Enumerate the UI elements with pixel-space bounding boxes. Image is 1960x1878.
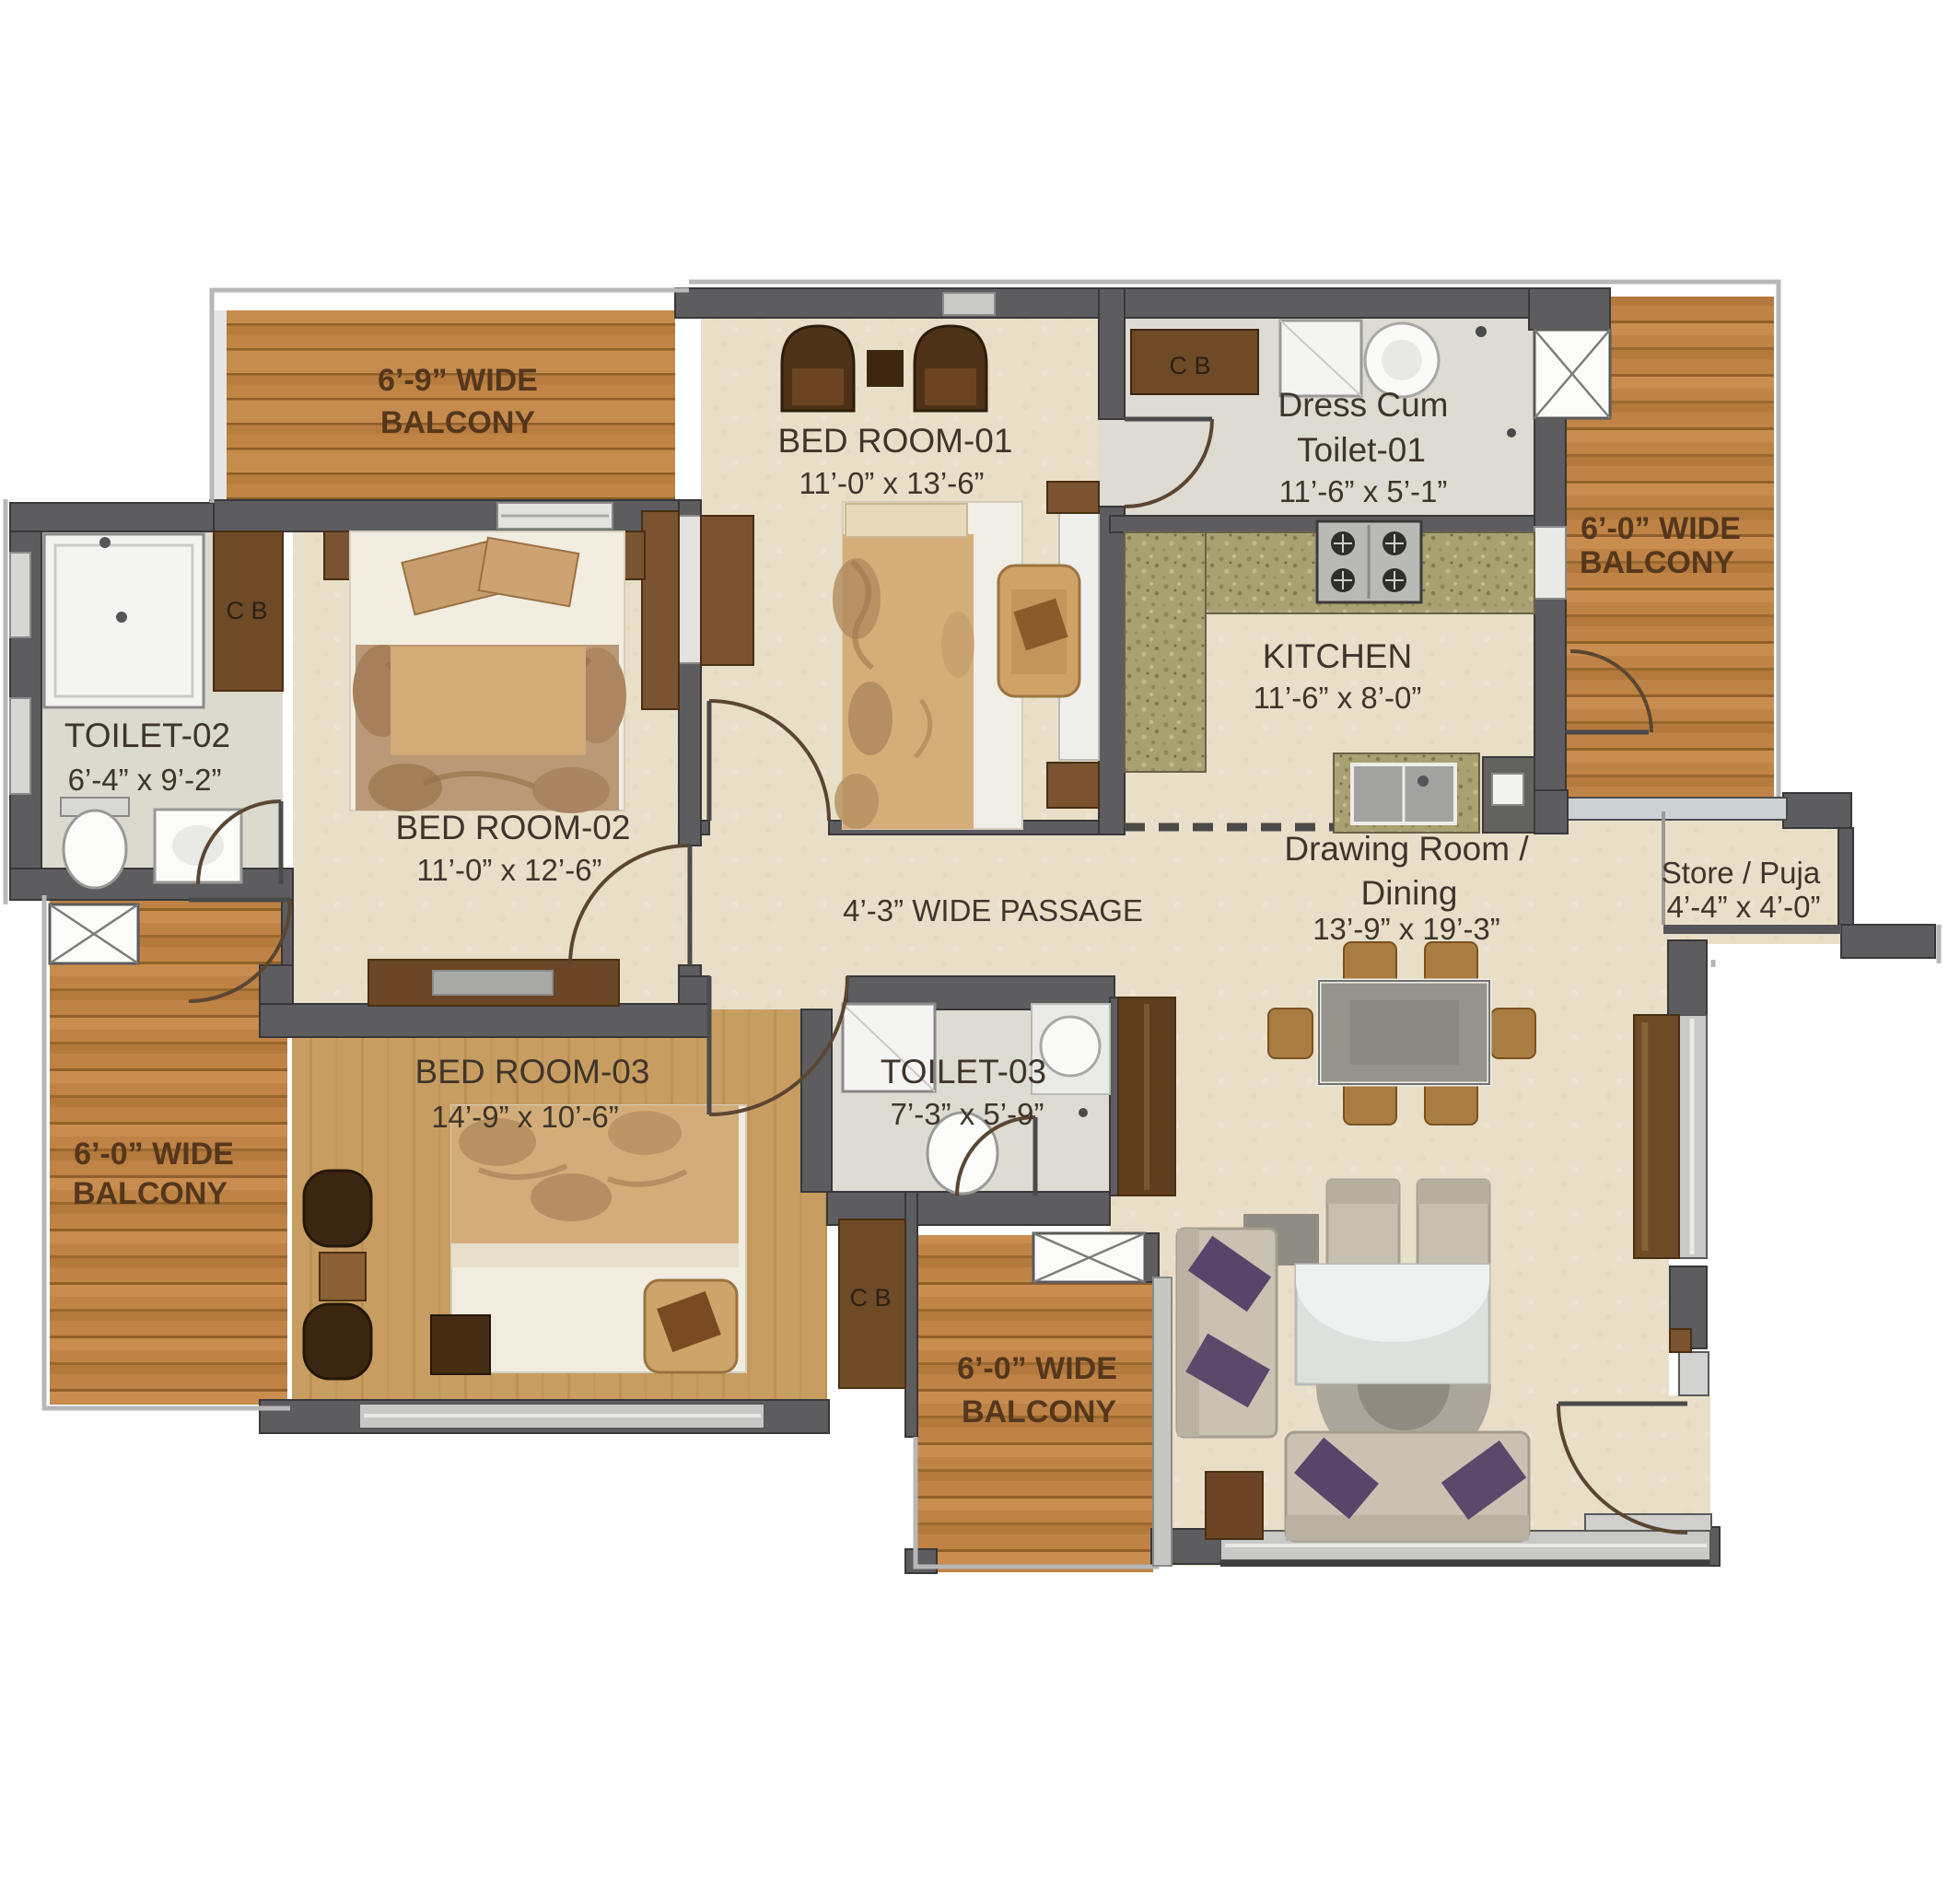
svg-text:14’-9” x 10’-6”: 14’-9” x 10’-6” — [431, 1100, 619, 1134]
svg-text:TOILET-03: TOILET-03 — [881, 1053, 1046, 1091]
svg-text:6’-0” WIDE: 6’-0” WIDE — [74, 1137, 234, 1172]
svg-text:13’-9” x 19’-3”: 13’-9” x 19’-3” — [1312, 912, 1500, 946]
svg-text:11’-0” x 13’-6”: 11’-0” x 13’-6” — [799, 466, 984, 500]
svg-text:11’-6” x 5’-1”: 11’-6” x 5’-1” — [1279, 474, 1448, 508]
svg-text:BED ROOM-01: BED ROOM-01 — [778, 422, 1013, 460]
svg-text:6’-9” WIDE: 6’-9” WIDE — [378, 363, 538, 398]
svg-text:BED ROOM-02: BED ROOM-02 — [396, 809, 631, 846]
svg-text:4’-4” x 4’-0”: 4’-4” x 4’-0” — [1667, 890, 1821, 924]
svg-text:6’-4” x 9’-2”: 6’-4” x 9’-2” — [68, 763, 222, 797]
svg-text:C B: C B — [849, 1284, 891, 1312]
svg-text:BALCONY: BALCONY — [1580, 545, 1734, 580]
svg-text:11’-6” x 8’-0”: 11’-6” x 8’-0” — [1254, 681, 1422, 715]
svg-text:7’-3” x 5’-9”: 7’-3” x 5’-9” — [891, 1097, 1044, 1131]
svg-text:C B: C B — [1169, 352, 1210, 379]
svg-text:6’-0” WIDE: 6’-0” WIDE — [1581, 511, 1741, 546]
svg-text:Dining: Dining — [1361, 874, 1458, 912]
svg-text:Toilet-01: Toilet-01 — [1297, 431, 1426, 469]
svg-text:11’-0” x 12’-6”: 11’-0” x 12’-6” — [416, 853, 601, 887]
svg-text:C B: C B — [226, 597, 267, 624]
svg-text:6’-0” WIDE: 6’-0” WIDE — [957, 1351, 1117, 1386]
svg-text:Dress Cum: Dress Cum — [1277, 386, 1448, 424]
svg-text:BALCONY: BALCONY — [73, 1176, 227, 1211]
svg-text:KITCHEN: KITCHEN — [1263, 637, 1412, 675]
svg-text:Store / Puja: Store / Puja — [1662, 856, 1821, 890]
svg-text:BALCONY: BALCONY — [380, 405, 535, 440]
svg-text:BED ROOM-03: BED ROOM-03 — [415, 1053, 650, 1091]
svg-text:TOILET-02: TOILET-02 — [64, 717, 230, 754]
svg-text:Drawing Room /: Drawing Room / — [1284, 830, 1529, 868]
svg-text:BALCONY: BALCONY — [962, 1394, 1116, 1429]
svg-text:4’-3” WIDE PASSAGE: 4’-3” WIDE PASSAGE — [843, 893, 1143, 927]
